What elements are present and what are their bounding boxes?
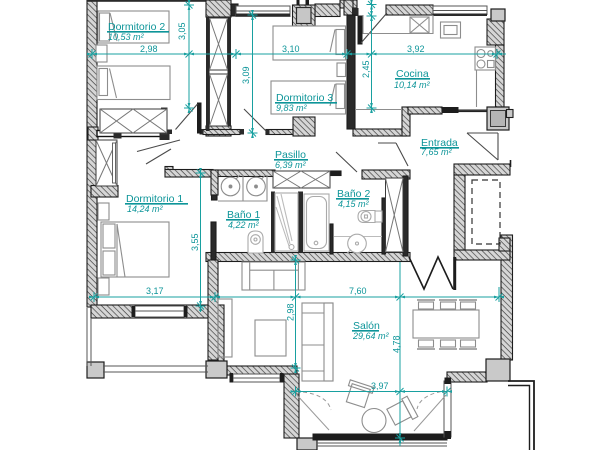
svg-text:3,09: 3,09 (241, 66, 251, 84)
svg-text:4,15 m²: 4,15 m² (338, 199, 370, 209)
svg-text:4,22 m²: 4,22 m² (228, 220, 260, 230)
svg-text:3,17: 3,17 (146, 286, 164, 296)
svg-text:10,53 m²: 10,53 m² (108, 32, 145, 42)
svg-text:2,98: 2,98 (286, 303, 296, 321)
svg-text:29,64 m²: 29,64 m² (352, 331, 390, 341)
svg-text:3,92: 3,92 (407, 44, 425, 54)
svg-text:3,97: 3,97 (371, 381, 389, 391)
svg-text:4,78: 4,78 (392, 335, 402, 353)
svg-text:14,24 m²: 14,24 m² (127, 204, 164, 214)
svg-text:2,98: 2,98 (140, 44, 158, 54)
svg-text:2,45: 2,45 (361, 60, 371, 78)
svg-text:6,39 m²: 6,39 m² (275, 160, 307, 170)
svg-text:9,83 m²: 9,83 m² (276, 103, 308, 113)
svg-text:3,55: 3,55 (190, 233, 200, 251)
svg-text:7,60: 7,60 (349, 286, 367, 296)
svg-text:3,05: 3,05 (177, 22, 187, 40)
svg-text:10,14 m²: 10,14 m² (394, 80, 431, 90)
svg-text:3,10: 3,10 (282, 44, 300, 54)
